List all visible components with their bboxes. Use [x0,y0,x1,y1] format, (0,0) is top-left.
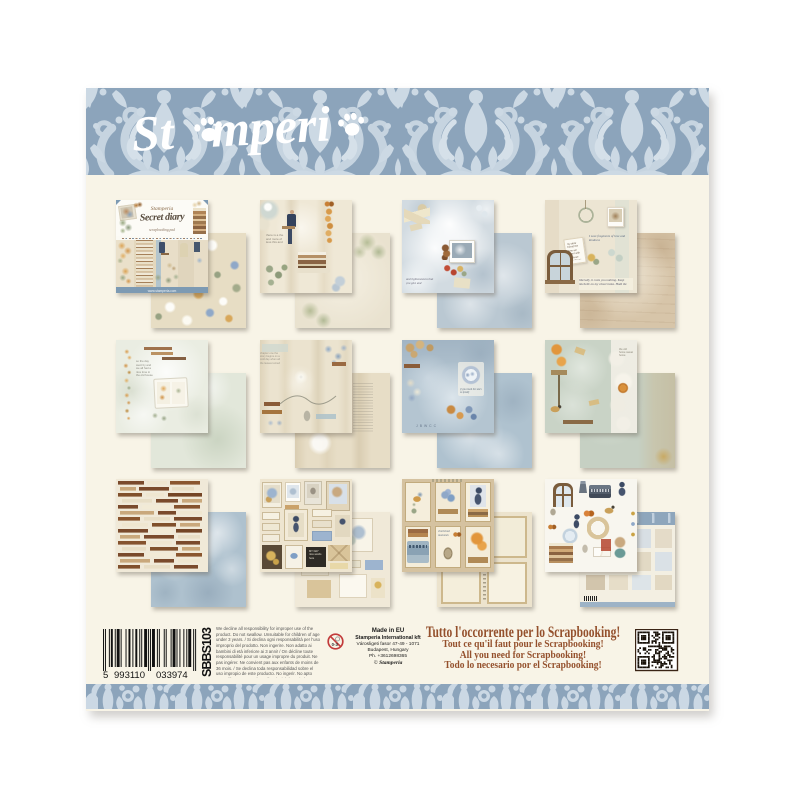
svg-text:SBBS103: SBBS103 [200,627,214,677]
svg-text:993110: 993110 [114,670,145,679]
svg-text:5: 5 [103,670,108,679]
svg-text:0-3: 0-3 [332,642,339,647]
svg-text:033974: 033974 [156,670,188,679]
